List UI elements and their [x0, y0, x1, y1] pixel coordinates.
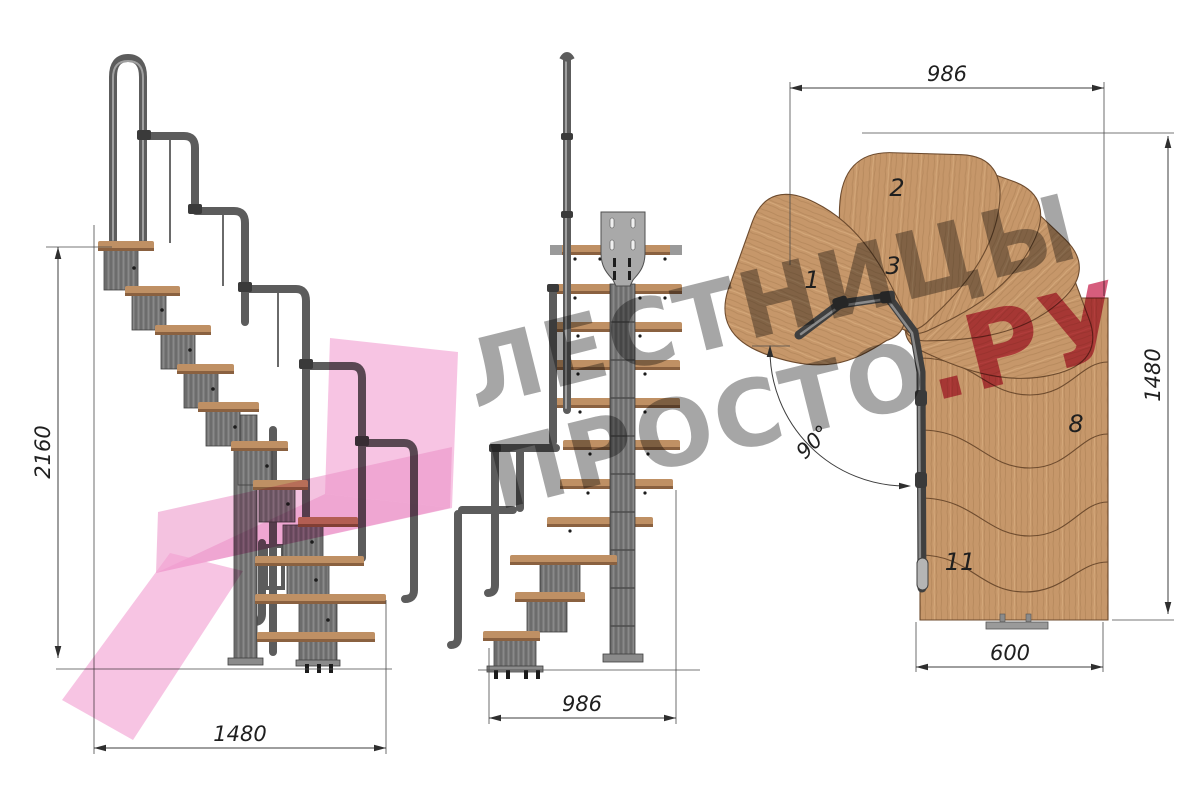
tread	[98, 241, 154, 251]
dim-label-1480-run: 1480	[213, 722, 266, 746]
handrail-segment-1	[148, 136, 195, 208]
tread	[155, 325, 211, 335]
step-number-2: 2	[889, 174, 904, 202]
tread	[125, 286, 180, 296]
dim-label-986-front: 986	[562, 692, 602, 716]
front-column-base	[603, 654, 643, 662]
dimension-side-height: 2160	[31, 247, 112, 658]
side-column-base	[228, 658, 263, 665]
pole-cap	[563, 56, 571, 60]
wall-mount-plate	[601, 212, 645, 286]
dim-label-1480-plan: 1480	[1141, 348, 1165, 401]
logo-tail-facet	[62, 553, 243, 740]
dim-label-986-plan: 986	[927, 62, 967, 86]
tread-bar	[547, 517, 653, 527]
step-number-11: 11	[945, 548, 976, 576]
tread	[257, 632, 375, 642]
tread	[255, 594, 386, 604]
tread	[177, 364, 234, 374]
tread	[231, 441, 288, 451]
staircase-blueprint: 2160 1480	[0, 0, 1200, 790]
watermark-logo-arrow	[62, 338, 458, 740]
tread-bar	[510, 555, 617, 565]
tread-bar	[515, 592, 585, 602]
dimension-exit-width: 600	[916, 622, 1103, 672]
dim-label-600: 600	[990, 641, 1030, 665]
tread	[198, 402, 259, 412]
handrail-loop	[113, 58, 143, 245]
handrail-segment-2	[196, 211, 245, 322]
tread-bar	[483, 631, 540, 641]
front-lower-steps	[483, 555, 617, 679]
front-rail-post-c	[451, 514, 458, 645]
step-number-8: 8	[1068, 410, 1083, 438]
tread	[255, 556, 364, 566]
staircase-drawing-page: 2160 1480	[0, 0, 1200, 790]
dim-label-2160: 2160	[31, 425, 55, 478]
